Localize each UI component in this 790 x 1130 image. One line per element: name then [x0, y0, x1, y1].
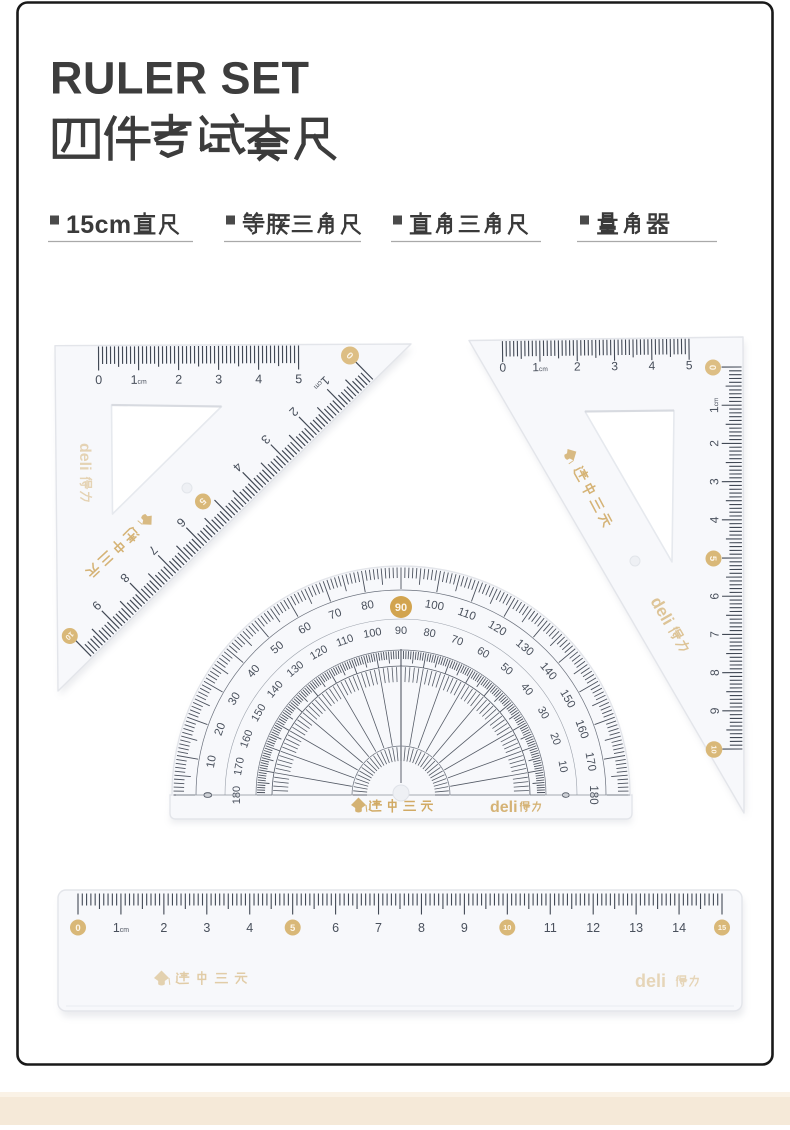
svg-text:4: 4 [255, 372, 262, 386]
svg-text:0: 0 [95, 373, 102, 387]
svg-text:5: 5 [290, 923, 296, 934]
svg-text:5: 5 [707, 556, 718, 562]
svg-text:6: 6 [708, 593, 722, 600]
svg-text:0: 0 [75, 923, 80, 934]
svg-text:4: 4 [649, 359, 656, 373]
svg-text:8: 8 [708, 669, 722, 676]
svg-text:4: 4 [246, 921, 253, 935]
svg-text:80: 80 [360, 599, 375, 613]
svg-text:11: 11 [544, 921, 557, 935]
svg-text:RULER SET: RULER SET [50, 53, 310, 104]
svg-text:deli: deli [635, 971, 666, 991]
svg-text:deli: deli [490, 799, 518, 816]
svg-text:15cm: 15cm [66, 211, 132, 239]
svg-text:14: 14 [672, 921, 686, 935]
svg-text:90: 90 [395, 602, 407, 614]
svg-text:3: 3 [215, 372, 222, 386]
svg-text:2: 2 [175, 373, 182, 387]
svg-text:3: 3 [203, 921, 210, 935]
svg-text:7: 7 [708, 631, 722, 638]
svg-text:3: 3 [611, 359, 618, 373]
svg-text:deli: deli [76, 443, 93, 471]
svg-text:5: 5 [686, 358, 693, 372]
svg-text:3: 3 [707, 478, 721, 485]
svg-text:9: 9 [461, 921, 468, 935]
svg-text:10: 10 [205, 754, 219, 769]
svg-text:13: 13 [629, 921, 643, 935]
svg-text:7: 7 [375, 921, 382, 935]
svg-text:10: 10 [556, 759, 570, 773]
svg-text:90: 90 [395, 625, 407, 637]
svg-text:2: 2 [574, 360, 581, 374]
svg-text:6: 6 [332, 921, 339, 935]
svg-text:4: 4 [707, 516, 721, 523]
svg-text:2: 2 [707, 440, 721, 447]
svg-text:80: 80 [422, 627, 436, 641]
svg-text:9: 9 [708, 707, 722, 714]
svg-text:15: 15 [718, 923, 726, 932]
svg-text:0: 0 [499, 361, 506, 375]
svg-text:2: 2 [160, 921, 167, 935]
svg-text:12: 12 [586, 921, 600, 935]
svg-text:10: 10 [503, 923, 511, 932]
svg-text:5: 5 [295, 372, 302, 386]
svg-text:8: 8 [418, 921, 425, 935]
svg-text:0: 0 [707, 365, 718, 370]
svg-text:10: 10 [709, 745, 718, 753]
